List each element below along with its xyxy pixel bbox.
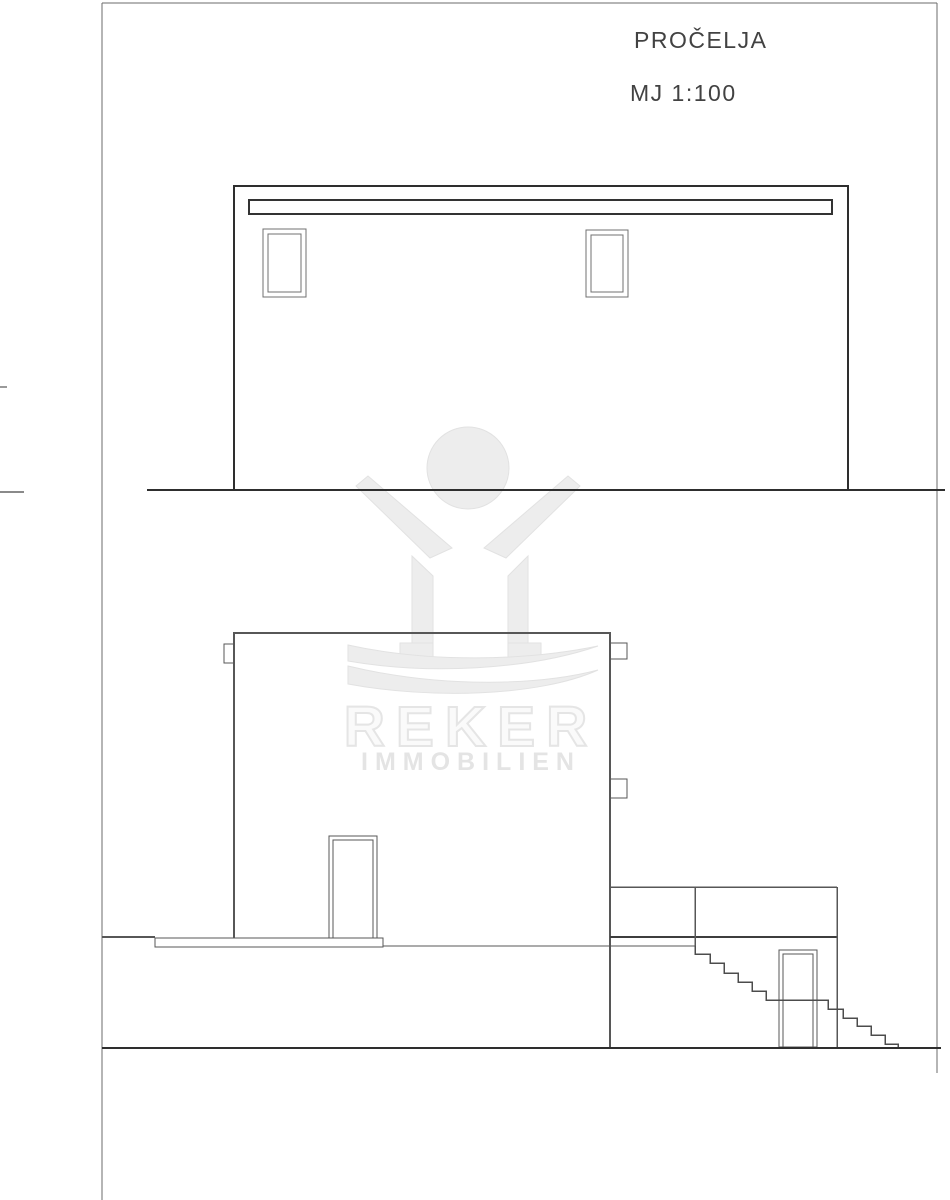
watermark-wave-upper xyxy=(348,645,598,669)
top-building-outline xyxy=(234,186,848,490)
window-right-outer-frame xyxy=(586,230,628,297)
window-right xyxy=(586,230,628,297)
left-wall-tab xyxy=(224,644,234,663)
page-border xyxy=(0,3,937,1200)
watermark-wave-lower xyxy=(348,666,598,693)
fascia-band xyxy=(249,200,832,214)
sheet-scale-label: MJ 1:100 xyxy=(630,80,737,107)
watermark-right-leg xyxy=(508,556,528,660)
sheet-title: PROČELJA xyxy=(634,27,767,54)
watermark-right-foot xyxy=(508,643,541,658)
annex-door-inner-frame xyxy=(783,954,813,1047)
watermark-left-foot xyxy=(400,643,433,658)
annex xyxy=(610,887,837,1047)
elevation-drawing xyxy=(0,0,950,1200)
window-left-inner-frame xyxy=(268,234,301,292)
right-wall-tab-lower xyxy=(610,779,627,798)
watermark-subtitle-text: IMMOBILIEN xyxy=(338,748,604,777)
watermark-head-circle xyxy=(427,427,509,509)
window-right-inner-frame xyxy=(591,235,623,292)
annex-door xyxy=(779,950,817,1047)
watermark-left-leg xyxy=(412,556,433,660)
annex-door-outer-frame xyxy=(779,950,817,1047)
window-left-outer-frame xyxy=(263,229,306,297)
right-wall-tab-upper xyxy=(610,643,627,659)
drawing-sheet: REKER IMMOBILIEN PROČELJA MJ 1:100 xyxy=(0,0,950,1200)
top-elevation xyxy=(147,186,945,490)
staircase-profile xyxy=(695,946,898,1048)
entry-door-outer-frame xyxy=(329,836,377,938)
terrace-slab xyxy=(155,938,383,947)
watermark-right-arm xyxy=(484,476,580,558)
watermark-left-arm xyxy=(356,476,452,558)
entry-door-inner-frame xyxy=(333,840,373,938)
reker-figure-watermark xyxy=(348,427,598,693)
window-left xyxy=(263,229,306,297)
entry-door xyxy=(329,836,377,938)
